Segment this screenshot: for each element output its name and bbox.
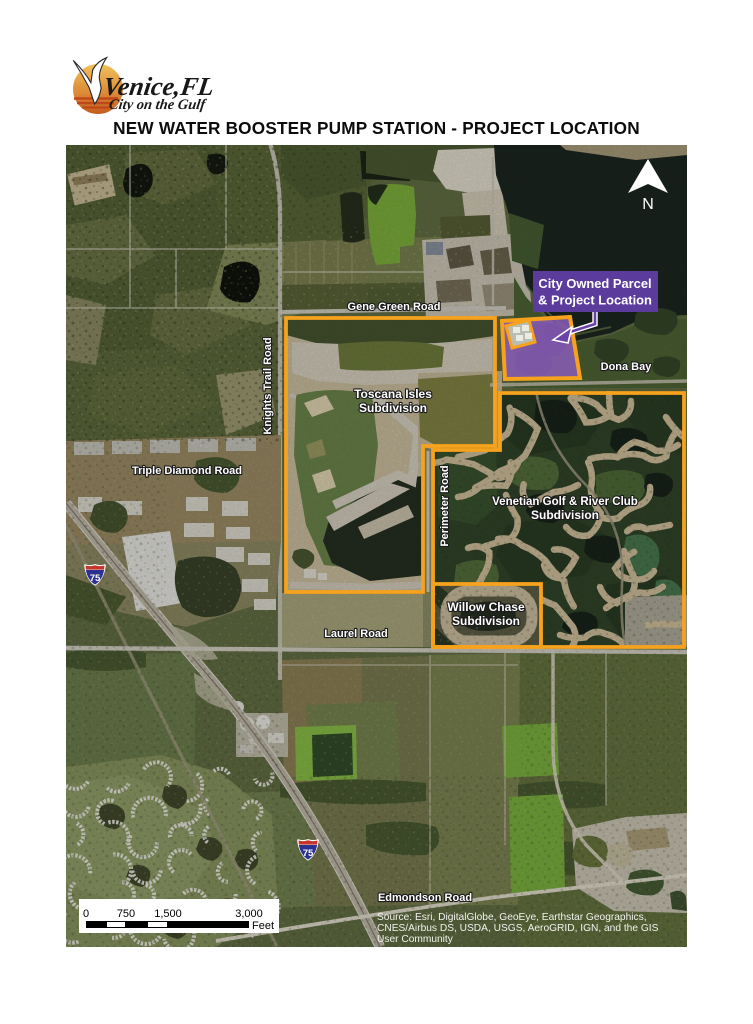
svg-text:N: N: [642, 196, 654, 213]
svg-text:Subdivision: Subdivision: [531, 508, 599, 522]
svg-text:750: 750: [117, 908, 135, 920]
svg-text:Willow Chase: Willow Chase: [447, 600, 525, 614]
svg-text:Gene Green Road: Gene Green Road: [348, 301, 441, 313]
svg-text:User Community: User Community: [377, 934, 454, 945]
svg-text:Laurel Road: Laurel Road: [324, 628, 388, 640]
svg-text:Triple Diamond Road: Triple Diamond Road: [132, 465, 242, 477]
svg-text:Knights Trail Road: Knights Trail Road: [262, 337, 274, 434]
svg-text:3,000: 3,000: [235, 908, 263, 920]
svg-text:Subdivision: Subdivision: [359, 401, 427, 415]
svg-text:Feet: Feet: [252, 920, 274, 932]
svg-text:Toscana Isles: Toscana Isles: [354, 387, 432, 401]
svg-text:& Project Location: & Project Location: [538, 293, 652, 308]
svg-text:City on the Gulf: City on the Gulf: [108, 97, 209, 113]
svg-text:City Owned Parcel: City Owned Parcel: [538, 276, 651, 291]
svg-text:Perimeter Road: Perimeter Road: [439, 465, 451, 546]
svg-text:Subdivision: Subdivision: [452, 614, 520, 628]
svg-text:Dona Bay: Dona Bay: [601, 361, 653, 373]
svg-text:Venetian Golf & River Club: Venetian Golf & River Club: [492, 496, 638, 508]
svg-text:75: 75: [90, 573, 101, 584]
svg-text:75: 75: [303, 848, 314, 859]
svg-text:1,500: 1,500: [154, 908, 182, 920]
svg-text:CNES/Airbus DS, USDA, USGS, Ae: CNES/Airbus DS, USDA, USGS, AeroGRID, IG…: [377, 923, 659, 934]
svg-text:0: 0: [83, 908, 89, 920]
svg-text:Edmondson Road: Edmondson Road: [378, 892, 472, 904]
svg-text:Source: Esri, DigitalGlobe, Ge: Source: Esri, DigitalGlobe, GeoEye, Eart…: [377, 912, 647, 923]
